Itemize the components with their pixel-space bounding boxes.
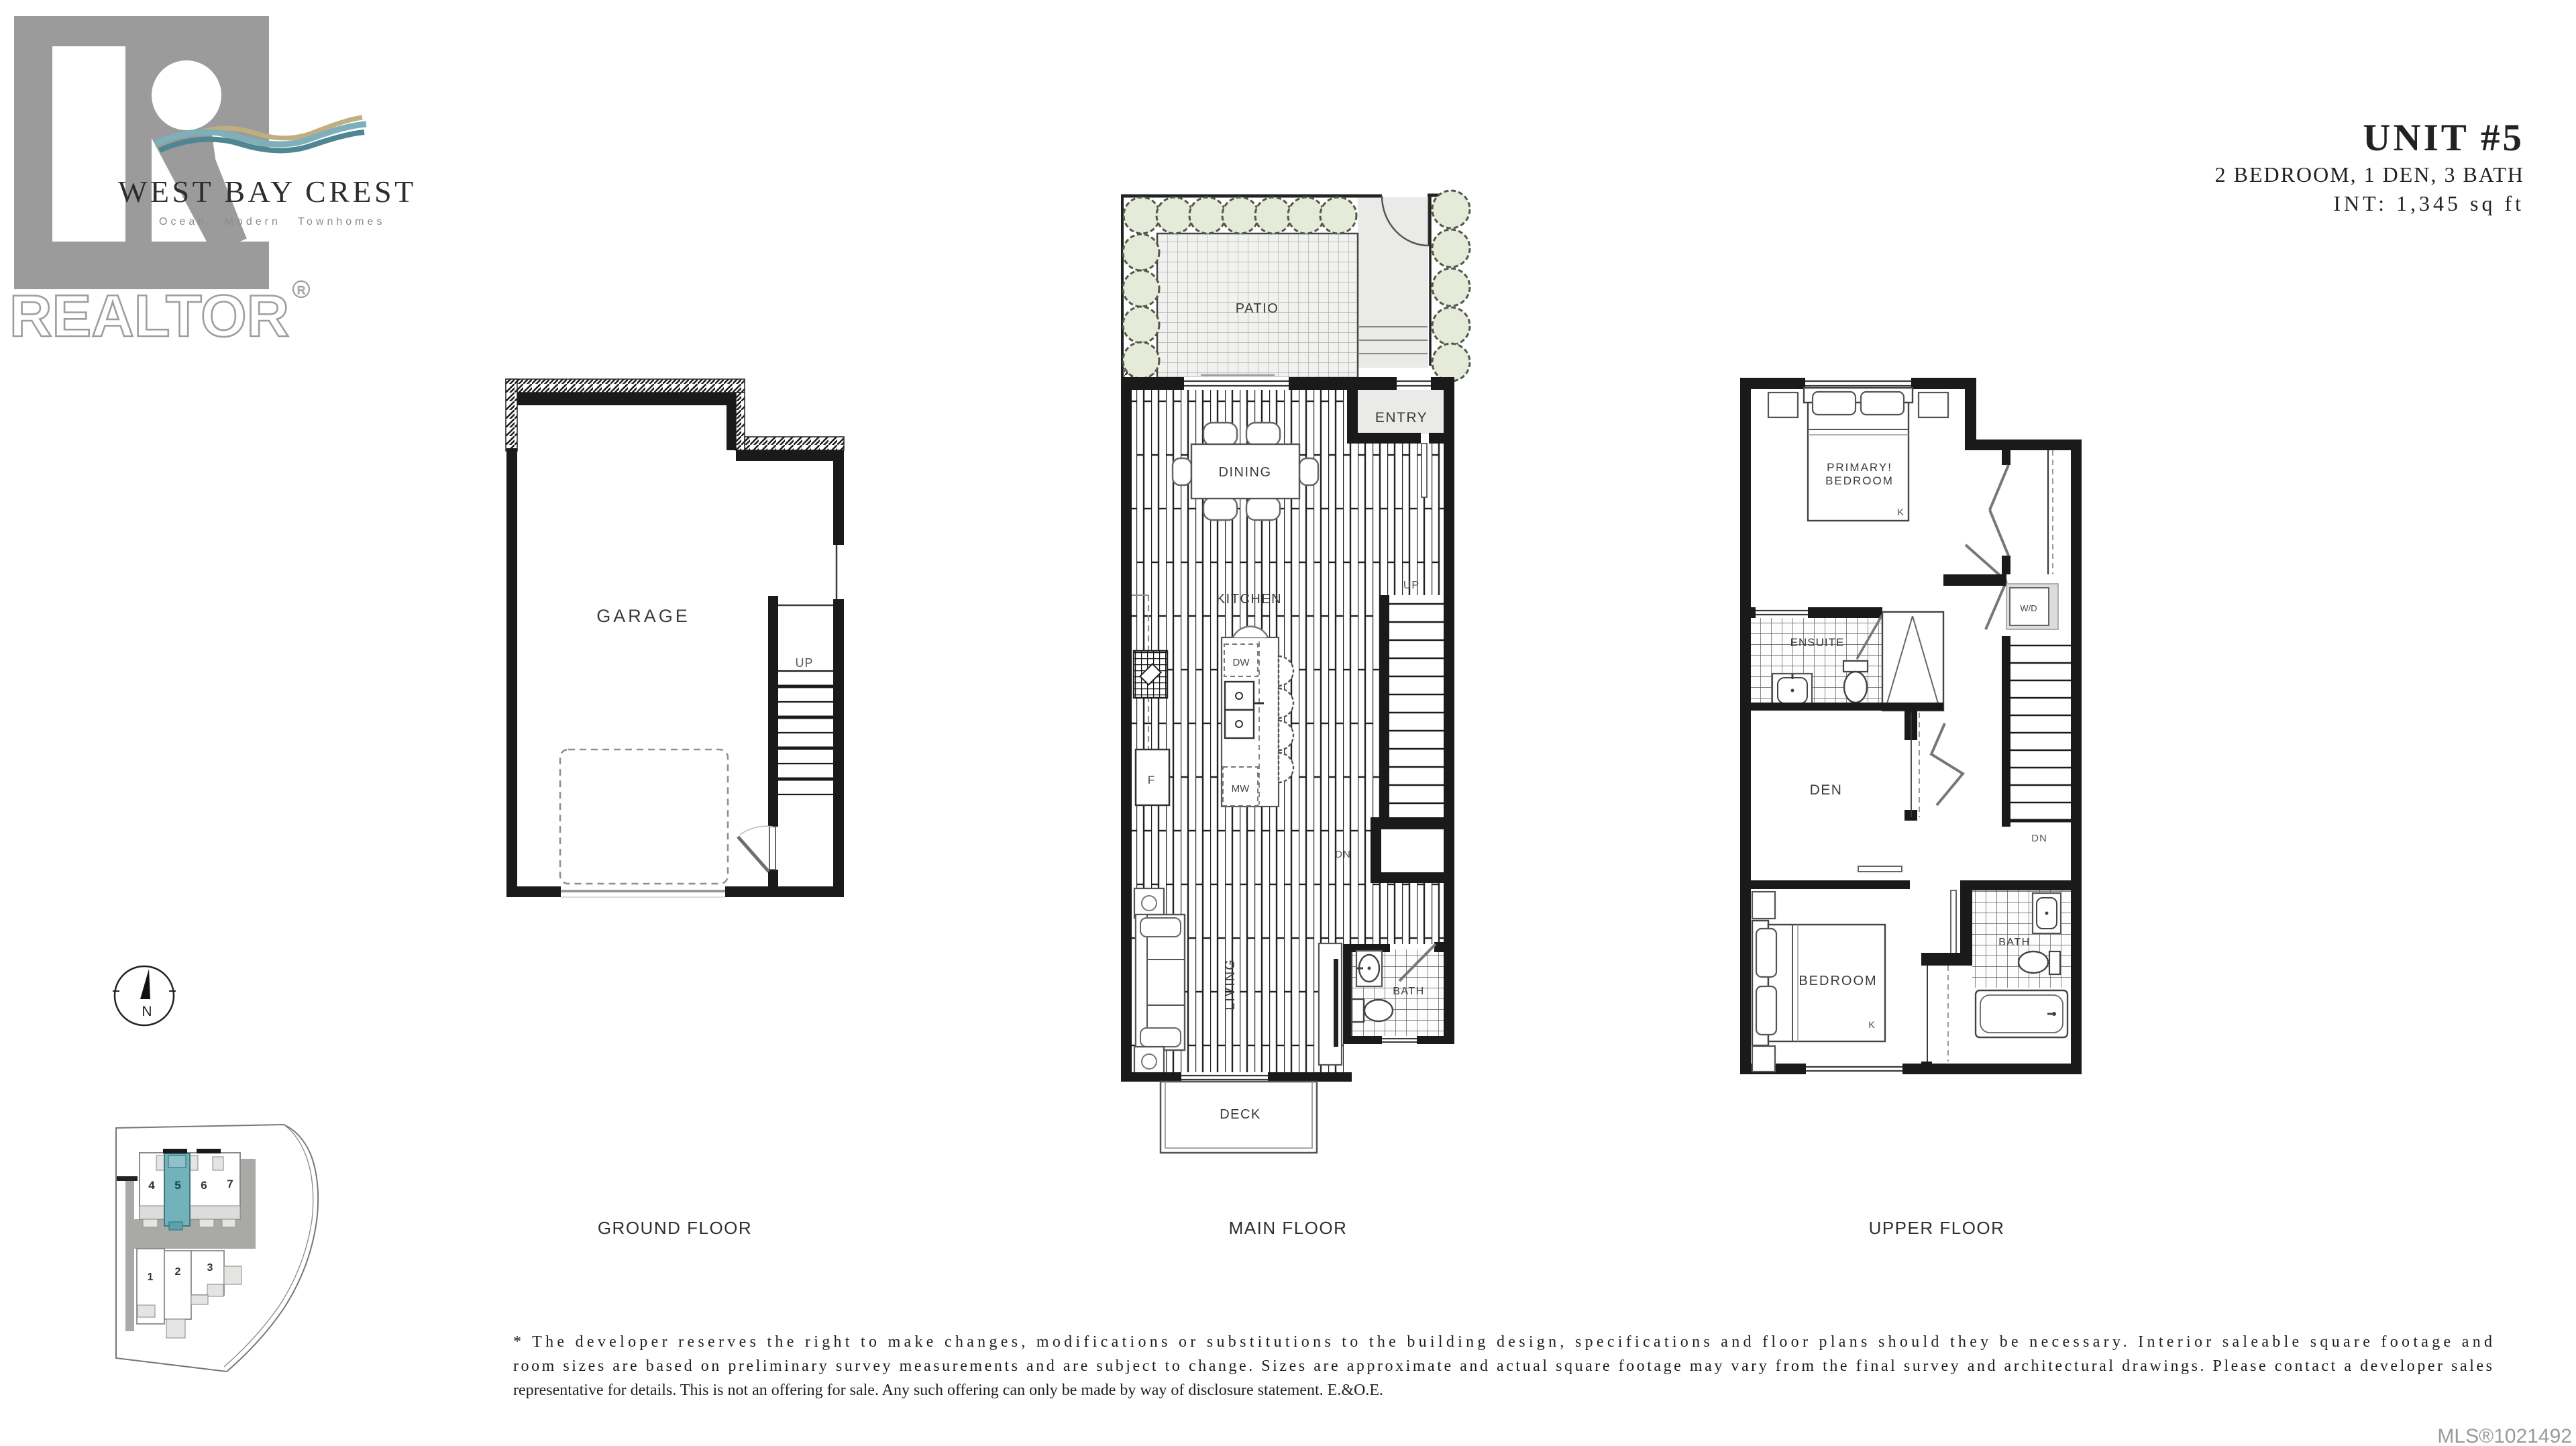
svg-text:BATH: BATH (1998, 937, 2030, 948)
svg-text:DEN: DEN (1810, 782, 1843, 798)
svg-text:Ocean Modern Townhomes: Ocean Modern Townhomes (159, 216, 385, 227)
svg-text:ENTRY: ENTRY (1375, 410, 1428, 425)
svg-text:BEDROOM: BEDROOM (1799, 974, 1877, 988)
svg-text:DN: DN (1335, 849, 1351, 860)
svg-text:GROUND FLOOR: GROUND FLOOR (598, 1218, 752, 1238)
svg-text:3: 3 (207, 1262, 213, 1274)
svg-text:UPPER FLOOR: UPPER FLOOR (1869, 1218, 2005, 1238)
svg-text:2 BEDROOM, 1 DEN, 3 BATH: 2 BEDROOM, 1 DEN, 3 BATH (2215, 162, 2524, 187)
svg-text:7: 7 (227, 1178, 233, 1190)
svg-text:UNIT #5: UNIT #5 (2363, 117, 2524, 159)
svg-text:MLS®1021492: MLS®1021492 (2437, 1425, 2572, 1446)
svg-text:F: F (1148, 774, 1155, 786)
svg-text:BATH: BATH (1393, 986, 1424, 997)
svg-text:LIVING: LIVING (1223, 958, 1238, 1011)
svg-text:representative for details. Th: representative for details. This is not … (513, 1382, 1383, 1399)
svg-text:W/D: W/D (2020, 603, 2037, 613)
svg-text:* The developer reserves the: * The developer reserves the right to ma… (513, 1333, 2492, 1351)
svg-text:ENSUITE: ENSUITE (1790, 636, 1845, 649)
svg-text:6: 6 (201, 1179, 207, 1192)
svg-text:R: R (297, 284, 305, 297)
svg-text:INT: 1,345 sq ft: INT: 1,345 sq ft (2333, 191, 2524, 215)
svg-text:K: K (1897, 507, 1904, 517)
svg-text:2: 2 (175, 1266, 181, 1278)
svg-text:WEST BAY CREST: WEST BAY CREST (118, 174, 417, 209)
svg-text:GARAGE: GARAGE (596, 606, 690, 626)
svg-text:KITCHEN: KITCHEN (1216, 592, 1282, 607)
svg-text:DN: DN (2031, 833, 2047, 844)
svg-text:REALTOR: REALTOR (9, 282, 289, 349)
svg-text:MW: MW (1232, 783, 1250, 794)
svg-text:PRIMARY!: PRIMARY! (1827, 461, 1892, 474)
svg-text:PATIO: PATIO (1236, 301, 1279, 316)
svg-text:UP: UP (795, 656, 813, 670)
svg-text:4: 4 (148, 1179, 155, 1192)
svg-text:DECK: DECK (1220, 1107, 1261, 1122)
svg-text:BEDROOM: BEDROOM (1825, 474, 1894, 487)
svg-text:N: N (142, 1004, 152, 1019)
svg-text:5: 5 (174, 1179, 180, 1192)
svg-text:MAIN FLOOR: MAIN FLOOR (1229, 1218, 1348, 1238)
svg-text:UP: UP (1403, 580, 1419, 591)
svg-text:DINING: DINING (1219, 465, 1272, 480)
svg-text:1: 1 (148, 1272, 154, 1283)
svg-text:K: K (1868, 1019, 1875, 1030)
svg-text:DW: DW (1233, 657, 1250, 668)
